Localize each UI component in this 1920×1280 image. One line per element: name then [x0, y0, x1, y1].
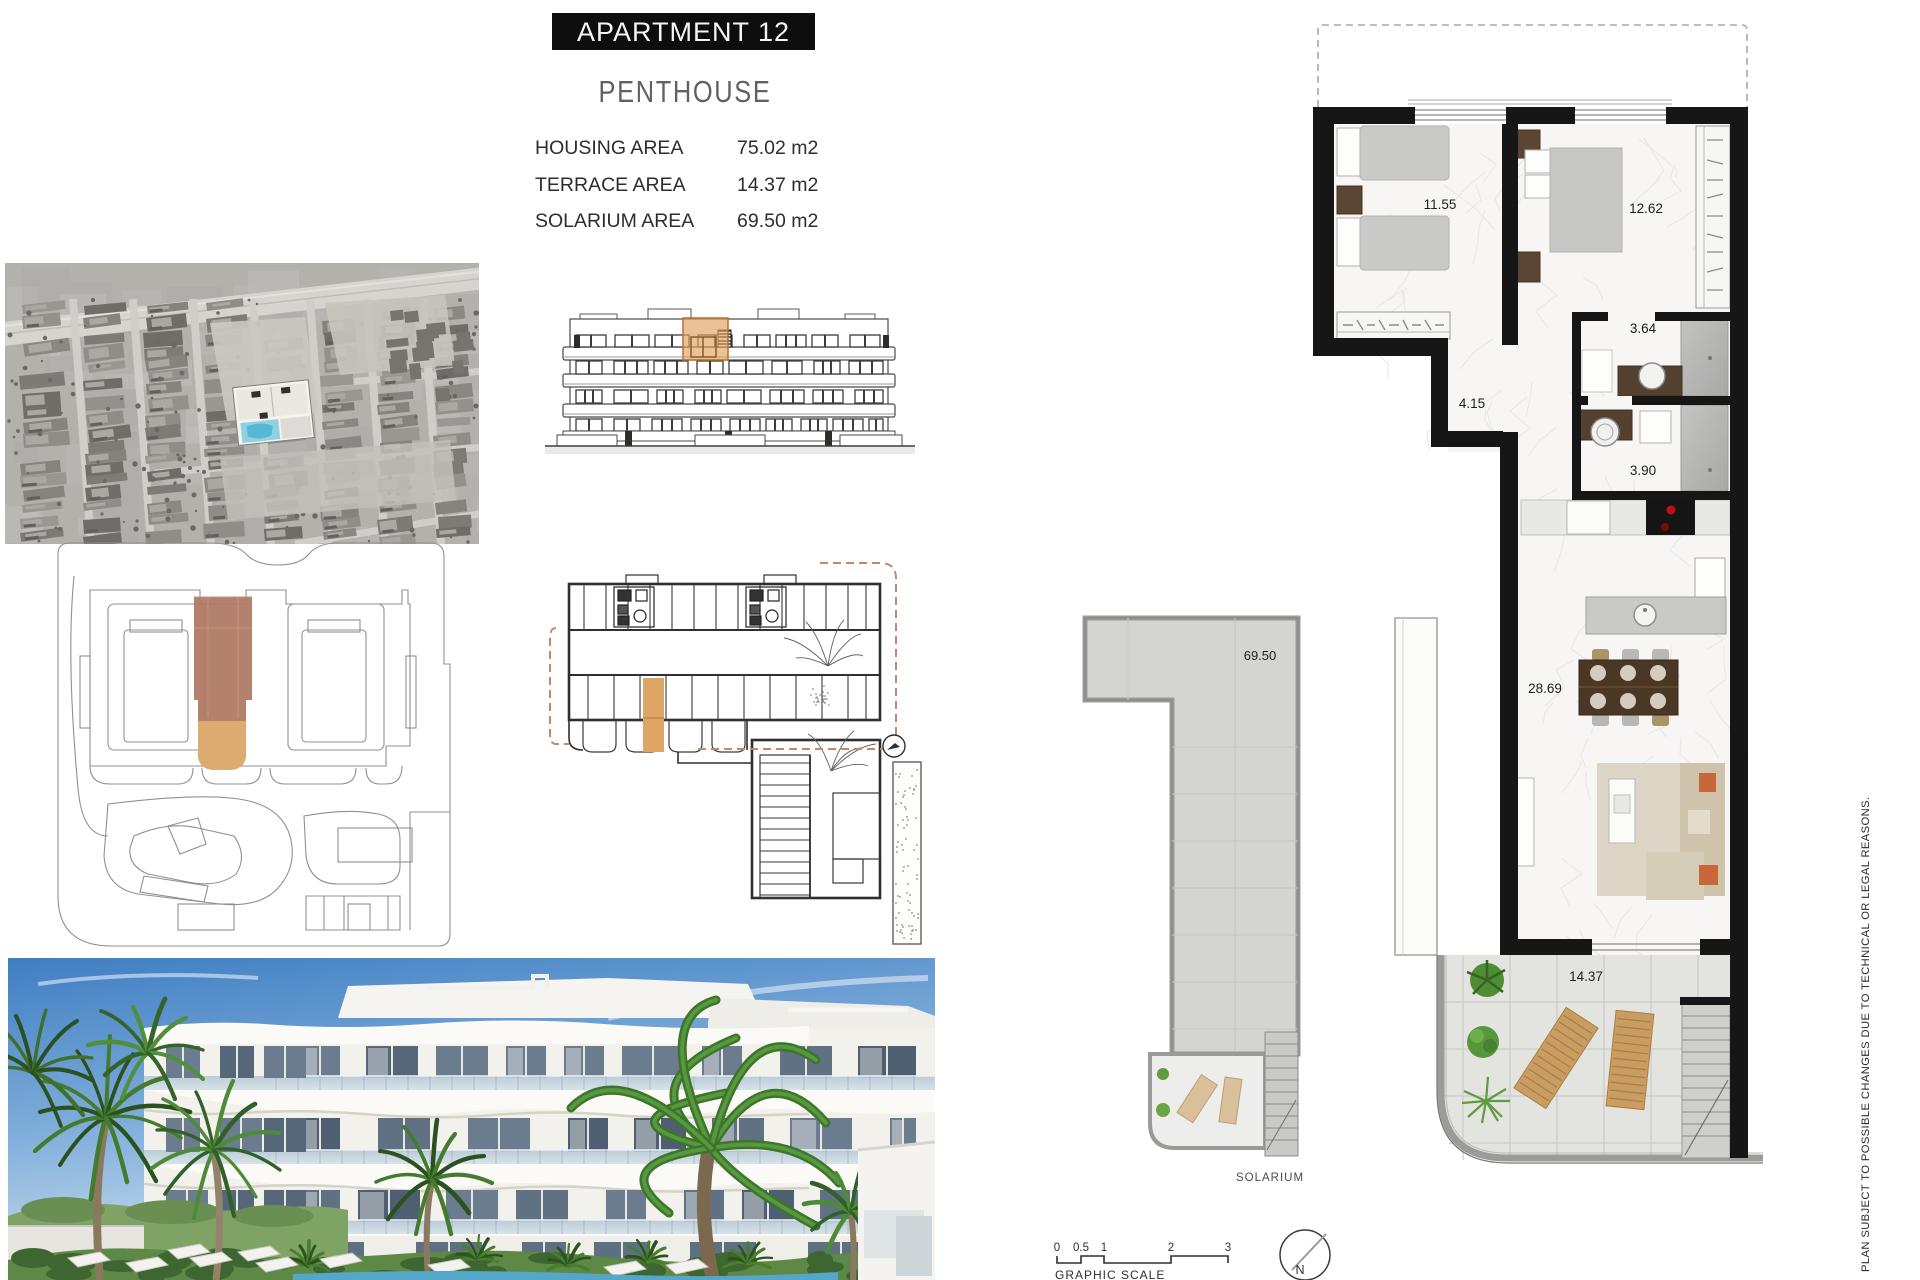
svg-text:14.37: 14.37	[1569, 969, 1603, 984]
svg-text:11.55: 11.55	[1424, 197, 1457, 212]
svg-text:3.90: 3.90	[1630, 463, 1656, 478]
svg-text:1: 1	[1101, 1242, 1107, 1254]
svg-text:0: 0	[1054, 1242, 1060, 1254]
svg-text:GRAPHIC SCALE: GRAPHIC SCALE	[1055, 1268, 1165, 1280]
svg-text:4.15: 4.15	[1459, 396, 1485, 411]
svg-text:28.69: 28.69	[1528, 681, 1562, 696]
svg-text:69.50: 69.50	[1244, 648, 1277, 663]
svg-text:2: 2	[1168, 1242, 1174, 1254]
svg-text:12.62: 12.62	[1629, 201, 1663, 216]
svg-text:N: N	[1295, 1263, 1304, 1277]
svg-text:3: 3	[1225, 1242, 1231, 1254]
svg-text:0.5: 0.5	[1073, 1242, 1089, 1254]
svg-text:3.64: 3.64	[1630, 321, 1657, 336]
